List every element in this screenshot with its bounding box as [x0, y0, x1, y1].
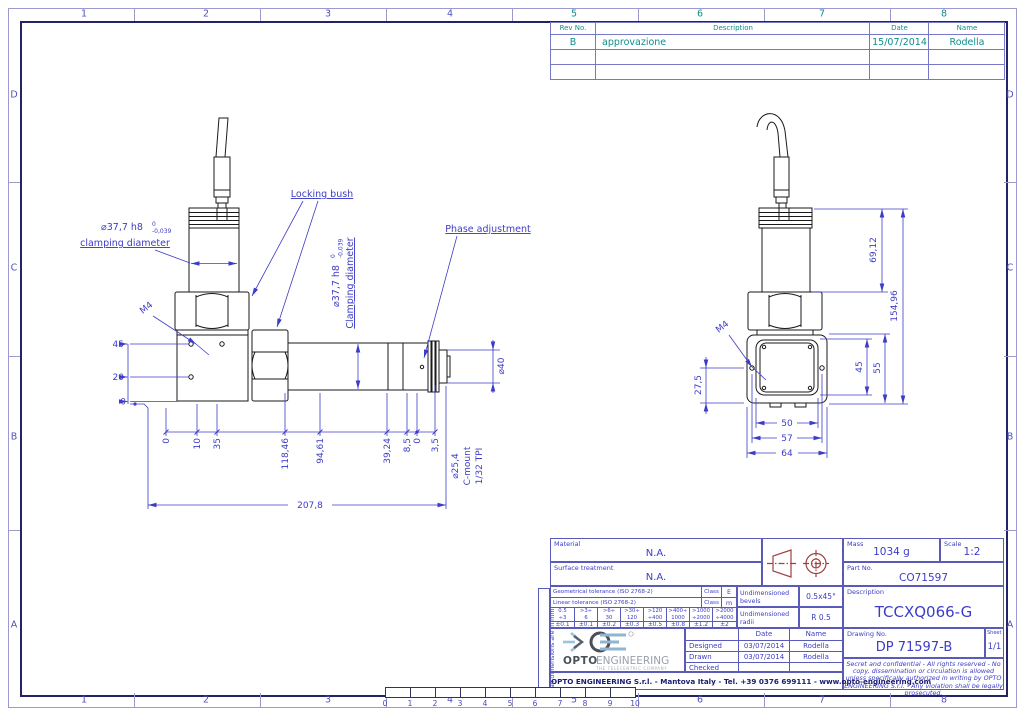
- drawing-sheet: 1 2 3 4 5 6 7 8 1 2 3 4 5 6 7 8 D C B A …: [0, 0, 1024, 715]
- lin-class-value: m: [721, 597, 736, 607]
- cmount-note-line1: ⌀25,4: [451, 453, 461, 479]
- bevels-value: 0.5x45°: [800, 592, 842, 601]
- tol-range-7: >2000÷4000: [712, 607, 736, 621]
- ruler-tick: 1: [408, 699, 413, 708]
- ruler-segment: [585, 687, 611, 698]
- signature-date-drawn: 03/07/2014: [738, 651, 789, 662]
- tol-range-6: >1000÷2000: [689, 607, 712, 621]
- dim-chain-8: 3,5: [431, 438, 441, 452]
- logo-chevron: [574, 636, 582, 648]
- ruler-tick: 6: [533, 699, 538, 708]
- tol-value-1: ±0.1: [574, 621, 597, 627]
- clamp-dia-tube-label: ⌀37,7 h8 0 -0,039 Clamping diameter: [330, 237, 356, 328]
- part-no-cell: Part No. CO71597: [843, 562, 1004, 586]
- signature-name-header: Name: [789, 629, 842, 640]
- tol-value-6: ±1.2: [689, 621, 712, 627]
- dim-dia40: ⌀40: [497, 357, 507, 374]
- clamp-dia-left-tol-upper: 0: [152, 221, 156, 228]
- mass-value: 1034 g: [844, 546, 939, 558]
- logo-cell: OPTO ENGINEERING THE TELECENTRIC COMPANY: [550, 628, 685, 672]
- strain-relief-ribs: [189, 208, 239, 228]
- dim-chain-2: 35: [213, 438, 223, 449]
- phase-screw: [420, 365, 423, 368]
- radii-value-cell: R 0.5: [799, 607, 843, 628]
- geo-class-value: E: [721, 587, 736, 597]
- tol-value-7: ±2: [712, 621, 736, 627]
- dim-0: 0: [120, 398, 126, 408]
- locking-bush-label: Locking bush: [291, 189, 353, 200]
- dim-chain-7: 0: [413, 438, 423, 444]
- tol-range-0: 0.5÷3: [551, 607, 574, 621]
- ruler-tick: 9: [608, 699, 613, 708]
- ruler-tick: 0: [383, 699, 388, 708]
- body-cylinder: [189, 228, 239, 292]
- locking-bush-2: [252, 330, 288, 401]
- title-block: all dimensions are in mm Material N.A. S…: [538, 538, 1004, 690]
- tol-range-1: >3÷6: [574, 607, 597, 621]
- description-value: TCCXQ066-G: [844, 603, 1003, 621]
- clamp-dia-tube-tol-lower: -0,039: [338, 238, 345, 258]
- strain-relief-ribs: [759, 208, 812, 228]
- clamp-dia-tube-value: ⌀37,7 h8: [331, 265, 342, 307]
- radii-value: R 0.5: [800, 613, 842, 622]
- cable: [216, 118, 228, 157]
- part-no-label: Part No.: [847, 564, 873, 572]
- cmount-tip: [439, 350, 450, 383]
- dim-45-right: 45: [855, 361, 865, 372]
- dim-chain-0: 0: [162, 438, 172, 444]
- radii-label-cell: Undimensioned radii: [737, 607, 799, 628]
- units-note-strip: all dimensions are in mm: [538, 588, 550, 690]
- right-view: [747, 114, 827, 407]
- dim-55: 55: [873, 362, 883, 373]
- m4-hole-right: [820, 366, 824, 370]
- dim-overall-207-8: 207,8: [297, 501, 323, 511]
- signature-role-drawn: Drawn: [686, 651, 738, 662]
- ruler-segment: [535, 687, 561, 698]
- projection-symbol-cell: [762, 538, 843, 586]
- signatures-table: Date Name Designed 03/07/2014 Rodella Dr…: [685, 628, 843, 672]
- dim-50: 50: [781, 419, 793, 429]
- ruler-tick: 3: [458, 699, 463, 708]
- clamp-dia-tube-tol-upper: 0: [330, 254, 337, 258]
- dim-27-5: 27,5: [694, 375, 704, 395]
- dim-chain-5: 39,24: [383, 438, 393, 464]
- scale-ruler: 0 1 2 3 4 5 6 7 8 9 10: [385, 687, 645, 709]
- ruler-tick: 2: [433, 699, 438, 708]
- ruler-segment: [560, 687, 586, 698]
- material-value: N.A.: [551, 548, 761, 559]
- ruler-segment: [460, 687, 486, 698]
- signature-name-designed: Rodella: [789, 640, 842, 651]
- cable: [757, 114, 788, 157]
- clamp-dia-left-tol-lower: -0,039: [152, 228, 172, 235]
- surface-treatment-label: Surface treatment: [554, 564, 613, 572]
- clamp-dia-left-caption: clamping diameter: [80, 238, 170, 249]
- class-label2: Class: [701, 597, 721, 607]
- tol-value-2: ±0.2: [597, 621, 620, 627]
- material-label: Material: [554, 540, 580, 548]
- clamp-dia-tube-caption: Clamping diameter: [345, 237, 356, 328]
- logo-tagline: THE TELECENTRIC COMPANY: [595, 666, 667, 671]
- mass-cell: Mass 1034 g: [843, 538, 940, 562]
- surface-treatment-value: N.A.: [551, 572, 761, 583]
- dim-154-96: 154,96: [890, 290, 900, 322]
- ruler-tick: 5: [508, 699, 513, 708]
- dim-chain-3: 118,46: [281, 438, 291, 470]
- signature-name-drawn: Rodella: [789, 651, 842, 662]
- tol-range-5: >400÷1000: [666, 607, 689, 621]
- ruler-segment: [435, 687, 461, 698]
- elbow-block: [177, 330, 248, 401]
- drawing-no-value: DP 71597-B: [844, 640, 984, 655]
- signature-role-designed: Designed: [686, 640, 738, 651]
- ruler-segment: [610, 687, 636, 698]
- m4-label-right: M4: [714, 319, 731, 335]
- cmount-note-line2: C-mount: [463, 446, 473, 485]
- signature-date-header: Date: [738, 629, 789, 640]
- ruler-tick: 4: [483, 699, 488, 708]
- dim-69-12: 69,12: [869, 237, 879, 263]
- dim-57: 57: [781, 434, 792, 444]
- ruler-segment: [410, 687, 436, 698]
- tol-value-0: ±0.1: [551, 621, 574, 627]
- signature-date-designed: 03/07/2014: [738, 640, 789, 651]
- tol-range-3: >30÷120: [620, 607, 643, 621]
- sheet-label: Sheet: [987, 630, 1001, 636]
- class-label: Class: [701, 587, 721, 597]
- dim-64: 64: [781, 449, 793, 459]
- ruler-tick: 7: [558, 699, 563, 708]
- scale-cell: Scale 1:2: [940, 538, 1004, 562]
- opto-engineering-logo: OPTO ENGINEERING THE TELECENTRIC COMPANY: [551, 629, 684, 671]
- dim-45: 45: [113, 340, 124, 350]
- ruler-segment: [510, 687, 536, 698]
- material-cell: Material N.A.: [550, 538, 762, 562]
- left-view: [175, 118, 450, 401]
- dim-chain-4: 94,61: [316, 438, 326, 464]
- tol-value-4: ±0.5: [643, 621, 666, 627]
- neck: [757, 330, 813, 335]
- cable-connector: [214, 157, 230, 197]
- bevels-label-cell: Undimensioned bevels: [737, 586, 799, 607]
- ruler-tick: 8: [583, 699, 588, 708]
- description-label: Description: [847, 588, 884, 596]
- phase-ring: [428, 341, 439, 392]
- tol-value-5: ±0.8: [666, 621, 689, 627]
- dim-chain-1: 10: [193, 438, 203, 450]
- drawing-no-cell: Drawing No. DP 71597-B: [843, 628, 985, 658]
- body-cylinder: [762, 228, 810, 292]
- phase-adjustment-label: Phase adjustment: [445, 224, 531, 235]
- logo-brand-bold: OPTO: [563, 655, 598, 667]
- ruler-segment: [485, 687, 511, 698]
- first-angle-projection-icon: [763, 539, 842, 585]
- m4-label-left: M4: [138, 300, 155, 316]
- sheet-cell: Sheet 1/1: [985, 628, 1004, 658]
- dim-chain-6: 8,5: [403, 438, 413, 452]
- bevels-value-cell: 0.5x45°: [799, 586, 843, 607]
- drawing-no-label: Drawing No.: [847, 630, 887, 638]
- sheet-value: 1/1: [986, 642, 1003, 652]
- clamp-dia-left-value: ⌀37,7 h8: [101, 222, 143, 233]
- ruler-tick: 10: [630, 699, 640, 708]
- registered-mark-icon: [629, 632, 633, 636]
- locking-bush-1: [175, 292, 249, 330]
- scale-value: 1:2: [941, 546, 1003, 558]
- square-flange: [747, 335, 827, 407]
- surface-treatment-cell: Surface treatment N.A.: [550, 562, 762, 586]
- tol-range-4: >120÷400: [643, 607, 666, 621]
- cmount-note-line3: 1/32 TPI: [475, 448, 485, 485]
- dim-20: 20: [113, 373, 125, 383]
- cable-connector: [774, 157, 789, 197]
- linear-tolerance-label: Linear tolerance (ISO 2768-2): [551, 597, 701, 607]
- radii-label: Undimensioned radii: [738, 608, 798, 629]
- tolerance-table: Geometrical tolerance (ISO 2768-2) Class…: [550, 586, 737, 628]
- bevels-label: Undimensioned bevels: [738, 587, 798, 608]
- ruler-segment: [385, 687, 411, 698]
- tol-range-2: >6÷30: [597, 607, 620, 621]
- part-no-value: CO71597: [844, 572, 1003, 584]
- locking-bush: [748, 292, 822, 330]
- description-cell: Description TCCXQ066-G: [843, 586, 1004, 628]
- tol-value-3: ±0.3: [620, 621, 643, 627]
- geometrical-tolerance-label: Geometrical tolerance (ISO 2768-2): [551, 587, 701, 597]
